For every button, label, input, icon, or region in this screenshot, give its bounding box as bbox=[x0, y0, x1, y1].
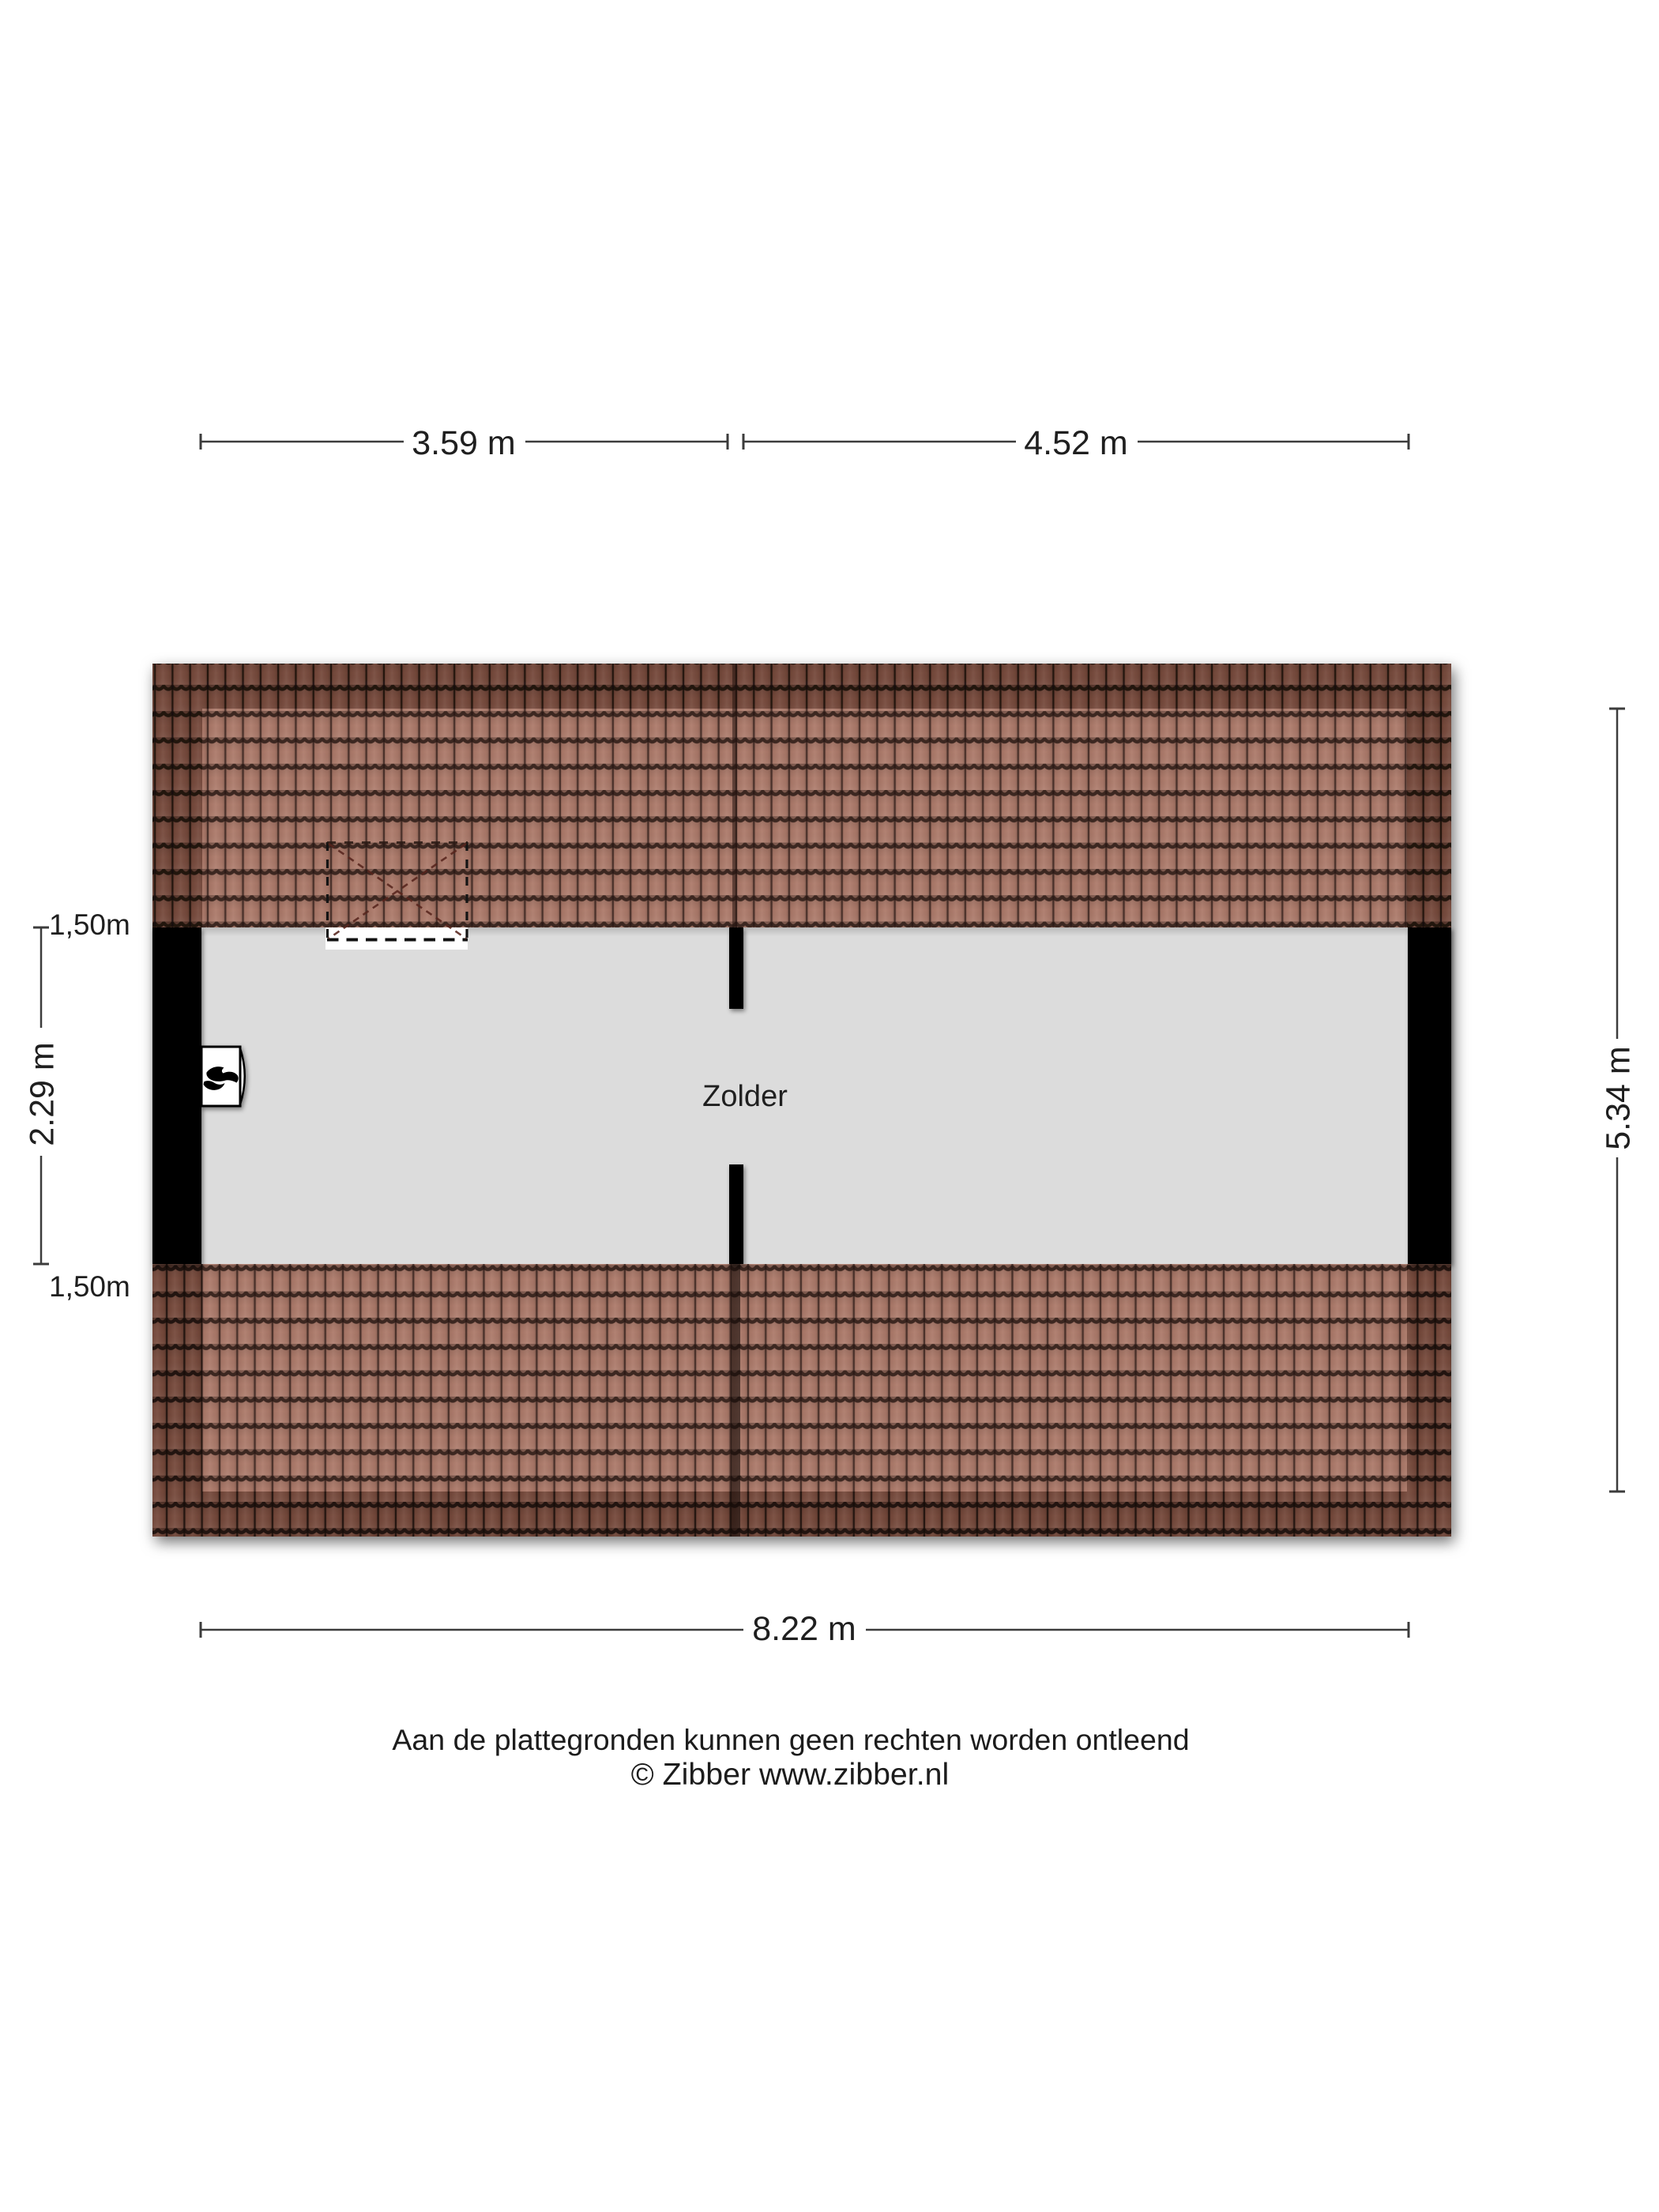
svg-text:© Zibber www.zibber.nl: © Zibber www.zibber.nl bbox=[631, 1757, 949, 1792]
svg-text:1,50m: 1,50m bbox=[49, 1270, 130, 1303]
svg-text:3.59 m: 3.59 m bbox=[412, 424, 515, 462]
svg-text:1,50m: 1,50m bbox=[49, 908, 130, 941]
svg-text:8.22 m: 8.22 m bbox=[752, 1610, 856, 1648]
svg-text:Zolder: Zolder bbox=[702, 1080, 788, 1113]
svg-text:4.52 m: 4.52 m bbox=[1024, 424, 1127, 462]
svg-text:5.34 m: 5.34 m bbox=[1600, 1046, 1638, 1149]
svg-text:Aan de plattegronden kunnen ge: Aan de plattegronden kunnen geen rechten… bbox=[392, 1723, 1189, 1756]
svg-text:2.29 m: 2.29 m bbox=[24, 1042, 62, 1145]
